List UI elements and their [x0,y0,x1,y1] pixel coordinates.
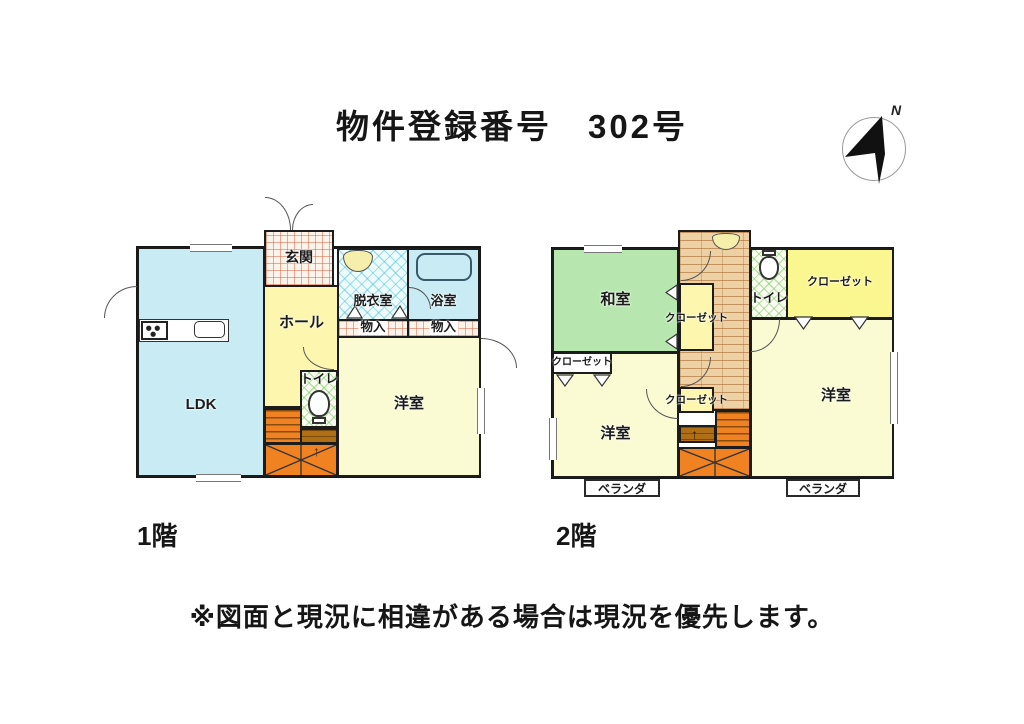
room-closet-left: クローゼット [552,352,612,374]
window-icon [196,474,241,482]
closet-door-icon [665,284,678,301]
room-western-1f: 洋室 [337,336,481,477]
bathtub-icon [416,253,472,281]
veranda-right-label: ベランダ [799,480,847,497]
closet-door-icon [556,374,574,387]
toilet-tank-icon [312,417,326,424]
room-label-closet-top-right: クローゼット [807,276,873,288]
room-label-japanese: 和室 [600,292,630,309]
room-label-toilet-1f: トイレ [300,373,338,387]
stairs-lines-icon [680,449,749,476]
room-entrance: 玄関 [264,230,334,287]
room-ldk: LDK [137,247,265,477]
room-label-western-2f-left: 洋室 [600,426,630,443]
room-label-western-2f-right: 洋室 [821,388,851,405]
room-label-storage-right: 物入 [429,321,458,335]
entrance-door-arc-icon [265,197,291,230]
window-icon [190,244,232,252]
room-label-dressing: 脱衣室 [353,294,392,308]
north-arrow-icon [840,112,906,186]
room-label-entrance: 玄関 [285,250,313,265]
closet-door-icon [593,374,611,387]
entrance-door-arc-icon [292,204,313,230]
stairs-up-arrow-icon: ↑ [691,427,698,441]
closet-door-icon [850,316,869,330]
floor2-caption: 2階 [556,516,596,553]
stairs-up-arrow-icon: ↑ [313,444,320,458]
ldk-door-arc-icon [104,286,137,318]
room-label-hall: ホール [279,315,324,332]
closet-door-icon [794,316,813,330]
stairs-lines-icon [266,445,336,475]
closet-door-icon [665,333,678,350]
western-room-door-arc-icon [481,338,517,368]
toilet-icon [759,256,779,280]
room-label-storage-left: 物入 [358,321,387,335]
room-label-toilet-2f: トイレ [750,292,788,306]
window-icon [549,418,557,460]
toilet-icon [308,390,330,417]
window-icon [890,352,898,424]
stove-icon [141,321,168,340]
room-label-western-1f: 洋室 [394,396,424,413]
window-icon [584,245,622,253]
room-closet-lower: クローゼット [679,387,714,413]
room-label-bathroom: 浴室 [430,294,456,308]
veranda-left: ベランダ [584,479,660,497]
room-label-closet-center: クローゼット [665,313,728,325]
stairs-2f-treads [715,410,751,448]
room-label-closet-left: クローゼット [552,357,612,368]
stairs-1f-treads [264,408,302,444]
room-label-ldk: LDK [186,397,217,414]
kitchen-sink-icon [194,321,225,338]
stairs-1f-lower [264,443,338,477]
floor1-caption: 1階 [137,516,177,553]
floorplan-page: 物件登録番号 302号 N LDK 玄関 ホール 脱衣室 浴室 物入 物入 [0,0,1024,724]
veranda-right: ベランダ [786,479,860,497]
room-japanese: 和室 [552,248,679,353]
room-closet-top-right: クローゼット [786,248,894,319]
stairs-2f-lower [678,447,751,478]
veranda-left-label: ベランダ [598,480,646,497]
disclaimer-text: ※図面と現況に相違がある場合は現況を優先します。 [0,597,1024,634]
room-closet-center: クローゼット [679,283,714,351]
closet-door-icon [391,305,408,319]
stairs-1f-landing [300,428,338,444]
window-icon [477,388,485,434]
